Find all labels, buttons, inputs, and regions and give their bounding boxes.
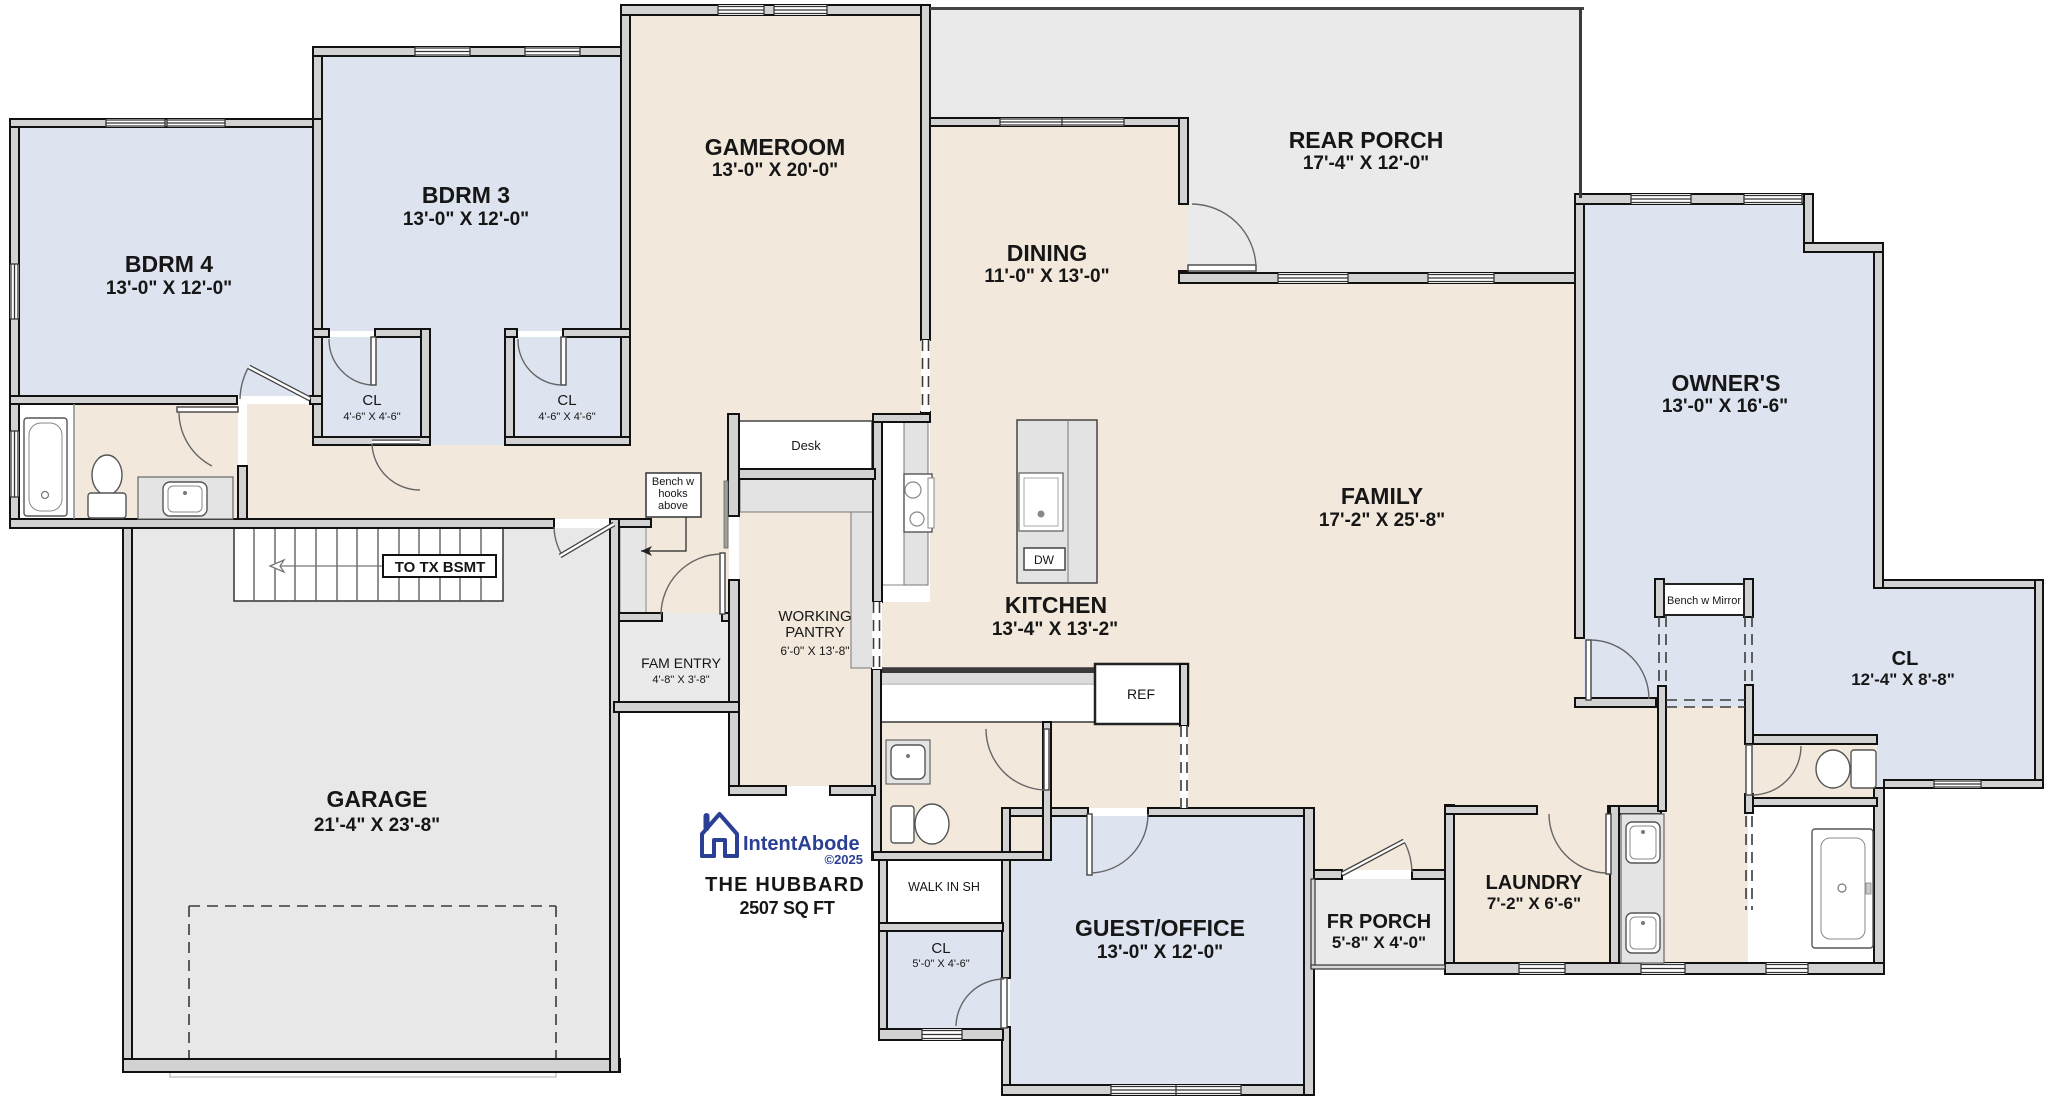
svg-text:above: above — [658, 500, 688, 512]
svg-text:CL: CL — [557, 392, 576, 409]
svg-text:FR PORCH: FR PORCH — [1327, 911, 1431, 933]
svg-text:13'-0" X 12'-0": 13'-0" X 12'-0" — [403, 209, 529, 230]
svg-text:REAR PORCH: REAR PORCH — [1289, 127, 1444, 153]
svg-text:4'-6" X 4'-6": 4'-6" X 4'-6" — [538, 411, 595, 423]
svg-text:17'-4" X 12'-0": 17'-4" X 12'-0" — [1303, 153, 1429, 174]
svg-text:FAMILY: FAMILY — [1341, 483, 1423, 509]
svg-text:7'-2" X 6'-6": 7'-2" X 6'-6" — [1487, 894, 1581, 913]
svg-text:BDRM 4: BDRM 4 — [125, 251, 213, 277]
svg-text:KITCHEN: KITCHEN — [1005, 592, 1107, 618]
svg-text:BDRM 3: BDRM 3 — [422, 182, 510, 208]
svg-text:REF: REF — [1127, 686, 1155, 702]
svg-text:CL: CL — [362, 392, 381, 409]
svg-text:13'-0" X 16'-6": 13'-0" X 16'-6" — [1662, 396, 1788, 417]
svg-text:12'-4" X 8'-8": 12'-4" X 8'-8" — [1851, 670, 1955, 689]
svg-text:hooks: hooks — [658, 488, 688, 500]
svg-text:TO TX BSMT: TO TX BSMT — [395, 559, 486, 576]
svg-text:©2025: ©2025 — [825, 852, 864, 867]
svg-text:WORKING: WORKING — [778, 608, 851, 625]
svg-text:WALK IN SH: WALK IN SH — [908, 880, 980, 894]
svg-text:CL: CL — [931, 940, 950, 957]
svg-text:17'-2" X 25'-8": 17'-2" X 25'-8" — [1319, 510, 1445, 531]
svg-text:Bench w: Bench w — [652, 476, 694, 488]
svg-text:5'-0" X 4'-6": 5'-0" X 4'-6" — [912, 958, 969, 970]
svg-text:13'-0" X 20'-0": 13'-0" X 20'-0" — [712, 160, 838, 181]
svg-text:4'-6" X 4'-6": 4'-6" X 4'-6" — [343, 411, 400, 423]
svg-text:LAUNDRY: LAUNDRY — [1485, 872, 1583, 894]
svg-text:OWNER'S: OWNER'S — [1672, 370, 1781, 396]
svg-text:Bench w Mirror: Bench w Mirror — [1667, 595, 1741, 607]
svg-text:GARAGE: GARAGE — [327, 786, 428, 812]
svg-text:6'-0" X 13'-8": 6'-0" X 13'-8" — [780, 644, 849, 658]
svg-text:11'-0" X 13'-0": 11'-0" X 13'-0" — [984, 266, 1109, 287]
svg-text:PANTRY: PANTRY — [785, 624, 844, 641]
svg-text:DW: DW — [1034, 553, 1055, 567]
svg-text:Desk: Desk — [791, 438, 821, 453]
svg-text:GUEST/OFFICE: GUEST/OFFICE — [1075, 915, 1245, 941]
svg-text:13'-4" X 13'-2": 13'-4" X 13'-2" — [992, 619, 1118, 640]
svg-text:FAM ENTRY: FAM ENTRY — [641, 655, 722, 671]
svg-text:THE HUBBARD: THE HUBBARD — [705, 874, 865, 896]
svg-text:13'-0" X 12'-0": 13'-0" X 12'-0" — [106, 278, 232, 299]
svg-text:4'-8" X 3'-8": 4'-8" X 3'-8" — [652, 674, 709, 686]
svg-text:21'-4" X 23'-8": 21'-4" X 23'-8" — [314, 815, 440, 836]
svg-text:CL: CL — [1892, 648, 1919, 670]
svg-text:GAMEROOM: GAMEROOM — [705, 134, 846, 160]
svg-text:5'-8" X 4'-0": 5'-8" X 4'-0" — [1332, 933, 1426, 952]
svg-text:13'-0" X 12'-0": 13'-0" X 12'-0" — [1097, 942, 1223, 963]
svg-text:DINING: DINING — [1007, 240, 1088, 266]
svg-text:2507 SQ FT: 2507 SQ FT — [739, 898, 834, 918]
